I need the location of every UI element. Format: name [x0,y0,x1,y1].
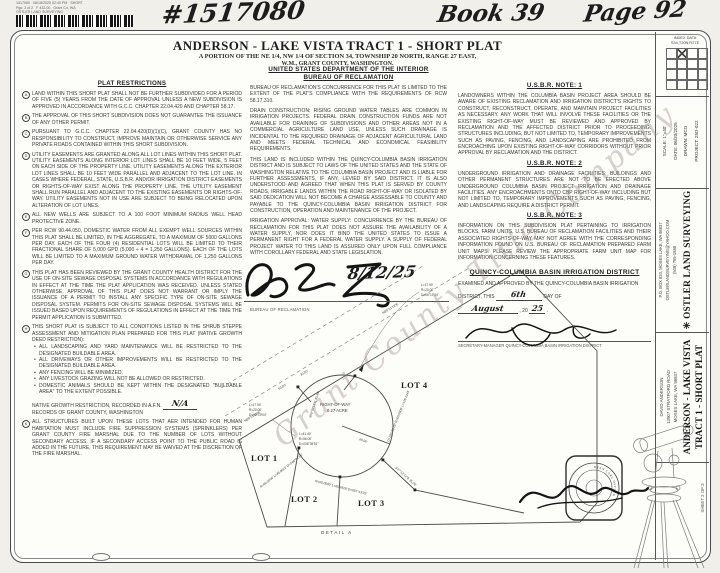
titleblock-rule [655,188,709,189]
stamp-line3: OSTLER LAND SURVEYING [16,10,63,14]
curve1b-d: D=05°19'04" [421,293,439,297]
usdi-heading: UNITED STATES DEPARTMENT OF THE INTERIOR [250,66,447,74]
handwritten-page-number: Page 92 [582,0,688,28]
company-address: P.O. BOX 820, MOSES LAKE, WA 98837 [658,190,665,330]
stamp-line2: Pgs: 2 of 2 F 432.00 Grant Co, WA [16,6,76,10]
curve2-l: L=41.40' [299,432,312,436]
titleblock-rule [655,96,709,97]
restriction-item-e: EALL NEW WELLS ARE SUBJECT TO A 100 FOOT… [22,212,242,225]
usbr-note2-text: UNDERGROUND IRRIGATION AND DRAINAGE FACI… [458,171,651,209]
titleblock-rule [655,332,709,333]
lot4-label: LOT 4 [401,380,428,390]
scale-label: SCALE: 1"=40' [660,98,671,184]
handwritten-book-number: Book 39 [435,0,546,28]
lot-line [344,376,355,390]
index-section-grid [666,48,708,90]
index-data-label: INDEX DATAS34,T20N,R27E [660,36,710,46]
restriction-item-a: ALAND WITHIN THIS SHORT PLAT SHALL NOT B… [22,91,242,110]
usbr-note2-heading: U.S.B.R. NOTE: 2 [458,160,651,168]
road-row-line [221,266,423,388]
surveyor-seal: RYAN CARL OSTLER [518,446,650,530]
recording-stamp: 1517080 08/18/2025 02:40 PM SHORTPgs: 2 … [16,1,83,15]
stamp-line1: 1517080 08/18/2025 02:40 PM SHORT [16,1,83,5]
binding-grommet [92,553,110,561]
page-title: ANDERSON - LAKE VISTA TRACT 1 - SHORT PL… [30,38,645,54]
company-name: ✳ OSTLER LAND SURVEYING [682,190,693,330]
handwritten-instrument-number: #1517080 [160,0,307,30]
native-growth-afn-line: NATIVE GROWTH RESTRICTION, RECORDED IN A… [32,398,242,416]
usbr-note3-heading: U.S.B.R. NOTE: 3 [458,212,651,220]
curve2-r: R=56.00' [299,437,312,441]
lot3-label: LOT 3 [358,498,385,508]
bearing-s47: S47°12'14"E 35.00' [394,466,417,488]
bor-paragraph: IRRIGATION APPROVAL: WATER SUPPLY: CONCU… [250,218,447,256]
restriction-item-b: BTHE APPROVAL OF THIS SHORT SUBDIVISION … [22,113,242,126]
afn-blank: N/A [163,398,197,409]
surveyor-company-block: P.O. BOX 820, MOSES LAKE, WA 98837 OSTLE… [658,190,712,330]
lot-line [383,460,524,513]
restriction-item-f: FPER RCW 90.44.050, DOMESTIC WATER FROM … [22,228,242,266]
restriction-item-k: KALL STRUCTURES BUILT UPON THESE LOTS TH… [22,419,242,457]
compass-logo-icon: ✳ [683,321,693,329]
page-subtitle: A PORTION OF THE NE 1/4, NW 1/4 OF SECTI… [30,53,645,60]
bor-heading: BUREAU OF RECLAMATION [250,74,447,82]
restriction-item-g: GTHIS PLAT HAS BEEN REVIEWED BY THE GRAN… [22,270,242,321]
restriction-item-d: DUTILITY EASEMENTS ARE GRANTED ALONG ALL… [22,152,242,210]
lot-line [298,387,311,402]
restriction-item-c: CPURSUANT TO G.C.C. CHAPTER 22.04.420(D)… [22,129,242,148]
lot2-label: LOT 2 [291,494,318,504]
project-label: PROJECT: 25D-022 [692,98,703,184]
road-bearing: N89°51'12"E [381,302,399,315]
usbr-note1-text: LANDOWNERS WITHIN THE COLUMBIA BASIN PRO… [458,93,651,157]
plat-restrictions-heading: PLAT RESTRICTIONS [22,80,242,88]
drawing-info-block: SCALE: 1"=40' DATE: 06/20/2025 DRAWN: MC… [660,98,710,184]
curve1-l: L=17.90' [249,403,262,407]
binding-grommet [252,553,270,561]
restriction-h-bullets: ALL LANDSCAPING AND YARD MAINTENANCE WIL… [32,344,242,395]
lot1-label: LOT 1 [251,453,278,463]
curve3-data: R=60.0000' L=60.4828' D=057°43'25" [315,479,368,496]
row-acreage-label: 0.27 ACRE [327,408,348,413]
index-grid-x-mark [677,48,688,59]
usbr-note1-heading: U.S.B.R. NOTE: 1 [458,82,651,90]
detail-caption: DETAIL A [321,530,353,535]
curve1b-l: L=17.90' [421,283,434,287]
drawn-label: DRAWN: MCO [681,98,692,184]
curve1b-r: R=20.00' [421,288,434,292]
date-label: DATE: 06/20/2025 [671,98,682,184]
curve4-data: D=120°33'18" R=60.0000' L=126.2443' [386,389,411,442]
curve1-r: R=20.00' [249,408,262,412]
row-area-label: RIGHT-OF-WAY [320,402,351,407]
bor-paragraph: THIS LAND IS INCLUDED WITHIN THE QUINCY-… [250,157,447,215]
restriction-item-h: H THIS SHORT PLAT IS SUBJECT TO ALL COND… [22,324,242,416]
curve1-d: D=05°19'04" [249,413,267,417]
company-email: OSTLERLANDSURVEYING@YAHOO.COM [665,190,672,330]
radius-dim: 60.00' [359,437,369,444]
curve2-d: D=036°35'51" [299,442,319,446]
plat-restrictions-section: PLAT RESTRICTIONS ALAND WITHIN THIS SHOR… [22,80,242,461]
bor-paragraph: BUREAU OF RECLAMATION'S CONCURRENCE FOR … [250,85,447,104]
handwritten-na: N/A [171,398,189,408]
bor-paragraph: DRAIN CONSTRUCTION: RISING GROUND WATER … [250,108,447,153]
dim-50: 50.00' [277,383,287,391]
scanned-short-plat-document: { "recording_stamp": { "line1": "1517080… [0,0,720,573]
company-phone: (509) 765-1588 [672,190,679,330]
surveyor-signature-scrawl [520,486,648,502]
dim-30: 30.00' [299,369,309,377]
barcode [16,15,134,27]
